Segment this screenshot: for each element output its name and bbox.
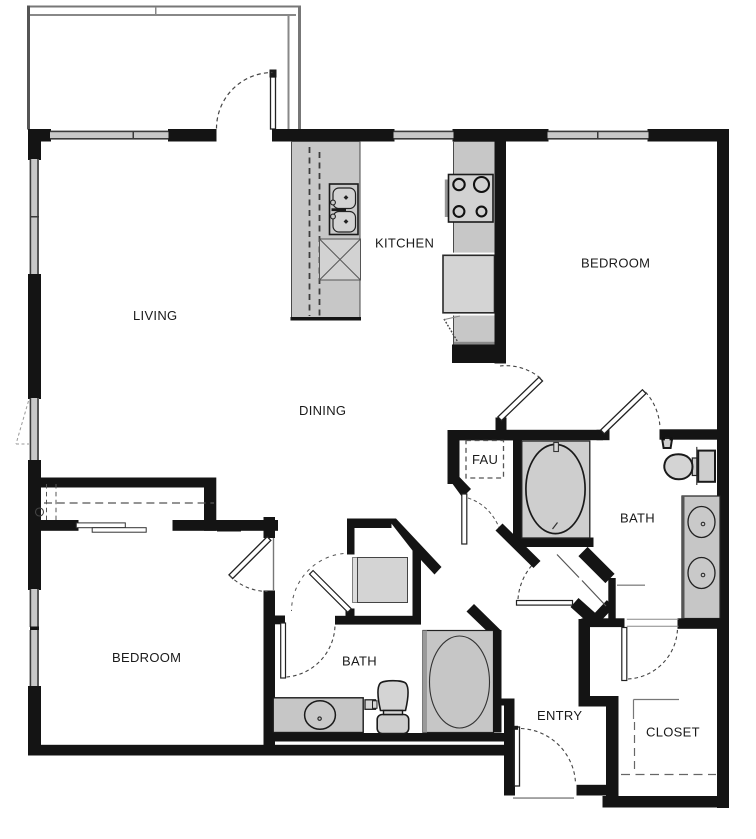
svg-text:CLOSET: CLOSET xyxy=(646,725,700,740)
svg-text:ENTRY: ENTRY xyxy=(537,708,582,723)
svg-text:BEDROOM: BEDROOM xyxy=(581,256,650,271)
svg-text:BEDROOM: BEDROOM xyxy=(112,650,181,665)
svg-text:FAU: FAU xyxy=(472,452,498,467)
svg-text:DINING: DINING xyxy=(299,403,346,418)
svg-text:BATH: BATH xyxy=(342,654,377,669)
svg-text:LIVING: LIVING xyxy=(133,308,177,323)
svg-text:KITCHEN: KITCHEN xyxy=(375,236,434,251)
svg-text:BATH: BATH xyxy=(620,511,655,526)
